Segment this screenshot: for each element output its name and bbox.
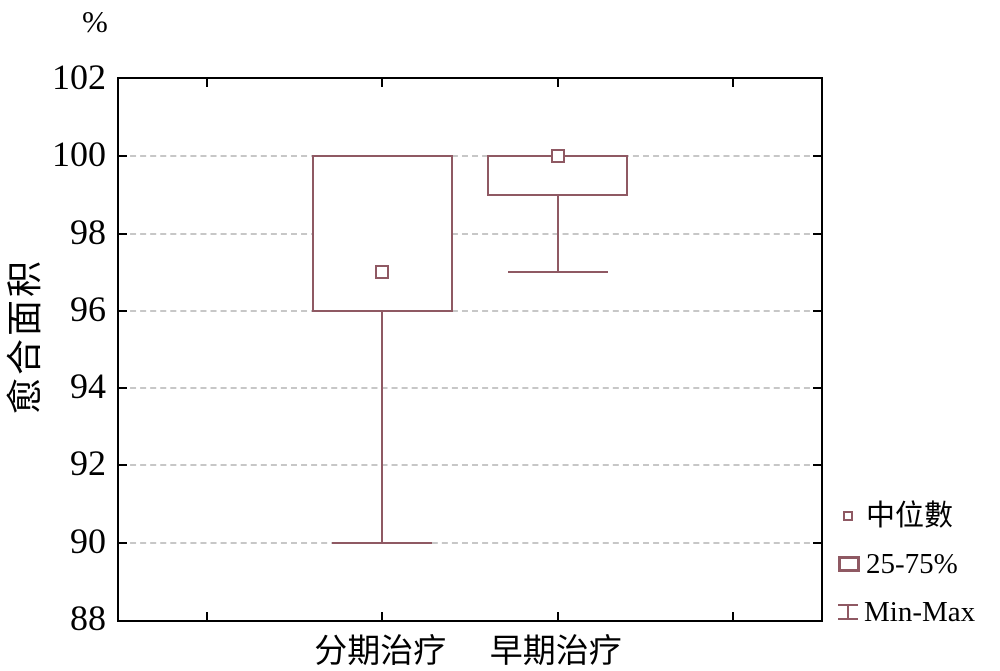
y-axis-tick bbox=[813, 233, 821, 235]
y-axis-tick bbox=[813, 542, 821, 544]
y-tick-label: 96 bbox=[0, 288, 106, 330]
y-axis-tick bbox=[119, 464, 127, 466]
legend: 中位數 25-75% Min-Max bbox=[838, 492, 975, 636]
min-cap bbox=[508, 271, 608, 273]
legend-item-minmax: Min-Max bbox=[838, 588, 975, 636]
box-25-75-icon bbox=[838, 556, 860, 572]
y-axis-tick bbox=[813, 464, 821, 466]
y-tick-label: 92 bbox=[0, 442, 106, 484]
y-axis-tick bbox=[119, 310, 127, 312]
x-axis-tick bbox=[206, 79, 208, 87]
boxplot-figure: % 愈合面积 102100989694929088 分期治疗早期治疗 中位數 2… bbox=[0, 0, 1000, 671]
gridline bbox=[120, 464, 820, 466]
y-tick-label: 88 bbox=[0, 597, 106, 639]
min-cap bbox=[332, 542, 432, 544]
y-axis-unit-label: % bbox=[82, 4, 108, 40]
x-axis-tick bbox=[381, 79, 383, 87]
legend-item-median: 中位數 bbox=[838, 492, 975, 540]
x-axis-tick bbox=[732, 79, 734, 87]
median-marker bbox=[551, 149, 565, 163]
x-axis-tick bbox=[732, 612, 734, 620]
x-axis-tick bbox=[206, 612, 208, 620]
y-tick-label: 90 bbox=[0, 520, 106, 562]
legend-label: 中位數 bbox=[866, 502, 953, 531]
y-axis-tick bbox=[813, 310, 821, 312]
gridline bbox=[120, 542, 820, 544]
y-tick-label: 98 bbox=[0, 211, 106, 253]
x-axis-tick bbox=[557, 79, 559, 87]
y-axis-tick bbox=[119, 155, 127, 157]
lower-whisker bbox=[381, 311, 383, 543]
y-axis-title: 愈合面积 bbox=[4, 230, 46, 442]
x-axis-tick bbox=[381, 612, 383, 620]
x-axis-tick bbox=[557, 612, 559, 620]
y-axis-tick bbox=[813, 155, 821, 157]
legend-label: Min-Max bbox=[864, 598, 975, 627]
minmax-whisker-icon bbox=[838, 604, 858, 620]
gridline bbox=[120, 155, 820, 157]
y-tick-label: 94 bbox=[0, 365, 106, 407]
y-tick-label: 100 bbox=[0, 133, 106, 175]
y-axis-tick bbox=[119, 387, 127, 389]
y-axis-tick bbox=[119, 233, 127, 235]
y-tick-label: 102 bbox=[0, 56, 106, 98]
iqr-box bbox=[312, 155, 453, 312]
median-marker bbox=[375, 265, 389, 279]
y-axis-tick bbox=[119, 542, 127, 544]
legend-label: 25-75% bbox=[866, 550, 958, 579]
median-marker-icon bbox=[843, 511, 853, 521]
gridline bbox=[120, 387, 820, 389]
plot-area bbox=[117, 77, 823, 622]
gridline bbox=[120, 310, 820, 312]
y-axis-tick bbox=[813, 387, 821, 389]
legend-item-box: 25-75% bbox=[838, 540, 975, 588]
x-category-label: 早期治疗 bbox=[446, 624, 666, 671]
lower-whisker bbox=[557, 195, 559, 272]
gridline bbox=[120, 233, 820, 235]
